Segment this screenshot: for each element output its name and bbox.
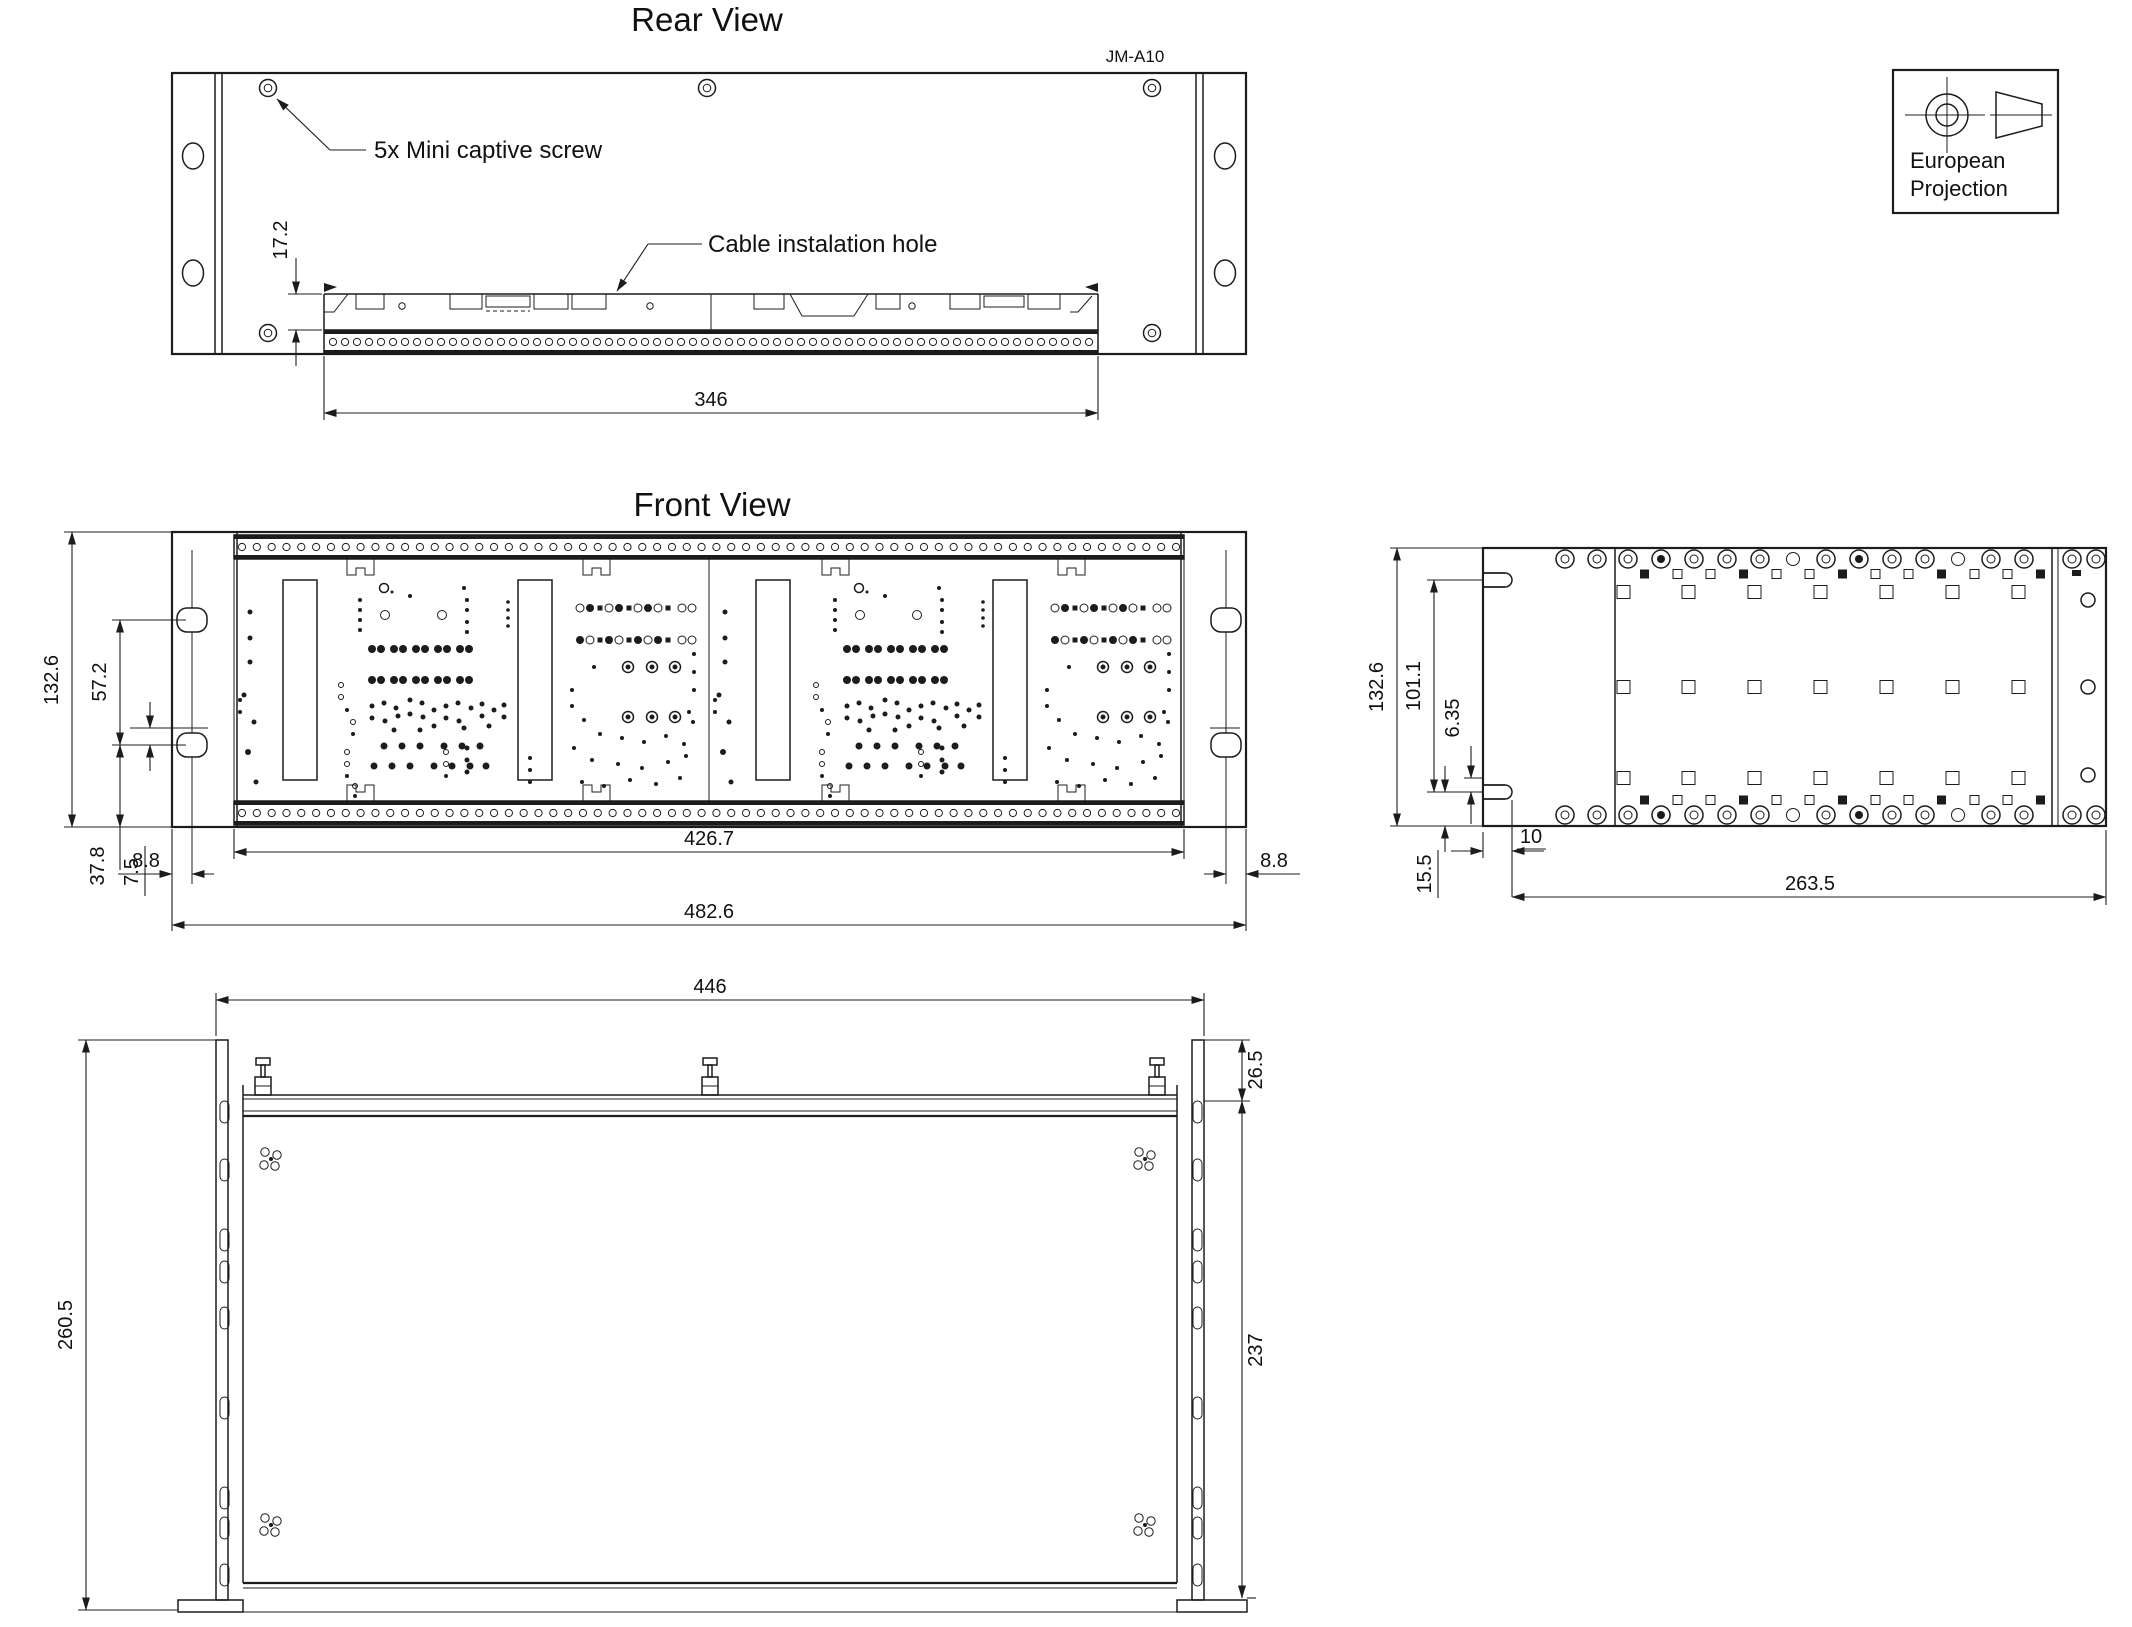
rear-view: Rear View JM-A10	[172, 1, 1246, 420]
engineering-drawing-page: Rear View JM-A10	[0, 0, 2132, 1627]
rear-view-title: Rear View	[631, 1, 783, 38]
top-width-dim: 446	[693, 976, 726, 998]
top-body-depth-dim: 237	[1245, 1333, 1267, 1366]
front-height-dim: 132.6	[41, 655, 63, 705]
pcb-pad-pattern	[238, 584, 1171, 799]
captive-screw-callout: 5x Mini captive screw	[374, 137, 603, 164]
rear-strip-width-dim: 346	[694, 389, 727, 411]
front-lower-dim: 37.8	[87, 847, 109, 886]
card-connector	[283, 580, 317, 780]
rack-slot	[183, 143, 204, 169]
side-hook-offset-dim: 6.35	[1442, 699, 1464, 738]
front-ear-left-dim: 8.8	[132, 850, 160, 872]
card-connector	[756, 580, 790, 780]
left-foot	[178, 1600, 243, 1612]
side-bottom-offset-dim: 15.5	[1414, 855, 1436, 894]
thumbscrew	[1211, 733, 1241, 757]
dsub-cutout	[790, 294, 868, 316]
side-view: 132.6 101.1 6.35 15.5 10 263.5	[1366, 548, 2106, 905]
card-connector	[518, 580, 552, 780]
drawing-canvas: Rear View JM-A10	[0, 0, 2132, 1627]
bracket-slots	[220, 1101, 1202, 1586]
front-view: Front View 132.6	[41, 486, 1300, 931]
side-fasteners	[1556, 550, 2105, 824]
front-top-terminal-strip	[238, 543, 1179, 550]
front-total-width-dim: 482.6	[684, 901, 734, 923]
thumbscrew	[1211, 608, 1241, 632]
card-connector	[993, 580, 1027, 780]
top-total-depth-dim: 260.5	[55, 1300, 77, 1350]
projection-symbol-box: European Projection	[1893, 70, 2058, 213]
right-foot	[1177, 1600, 1247, 1612]
left-bracket	[216, 1040, 228, 1600]
front-ear-right-dim: 8.8	[1260, 850, 1288, 872]
rack-slot	[1215, 260, 1236, 286]
top-flange-dim: 26.5	[1245, 1051, 1267, 1090]
first-angle-projection-icon	[1905, 77, 2052, 153]
projection-label-line2: Projection	[1910, 176, 2008, 201]
side-hook-span-dim: 101.1	[1403, 661, 1425, 711]
model-label: JM-A10	[1106, 47, 1165, 66]
rear-strip-offset-dim: 17.2	[270, 221, 292, 260]
front-bottom-terminal-strip	[238, 809, 1179, 816]
captive-screws	[260, 80, 1161, 342]
side-hook-depth-dim: 10	[1520, 826, 1542, 848]
corner-hole-clusters	[260, 1148, 1155, 1536]
side-height-dim: 132.6	[1366, 662, 1388, 712]
rack-slot	[1215, 143, 1236, 169]
mounting-hooks	[1483, 573, 1512, 799]
terminal-strip-contacts	[329, 338, 1092, 345]
rack-slot	[183, 260, 204, 286]
top-captive-screws	[255, 1058, 1165, 1095]
cable-hole-callout: Cable instalation hole	[708, 231, 938, 258]
front-board-width-dim: 426.7	[684, 828, 734, 850]
top-view: 446 260.5 26.5 237	[55, 976, 1267, 1612]
front-upper-dim: 57.2	[89, 663, 111, 702]
projection-label-line1: European	[1910, 148, 2005, 173]
front-view-title: Front View	[633, 486, 790, 523]
side-depth-dim: 263.5	[1785, 873, 1835, 895]
